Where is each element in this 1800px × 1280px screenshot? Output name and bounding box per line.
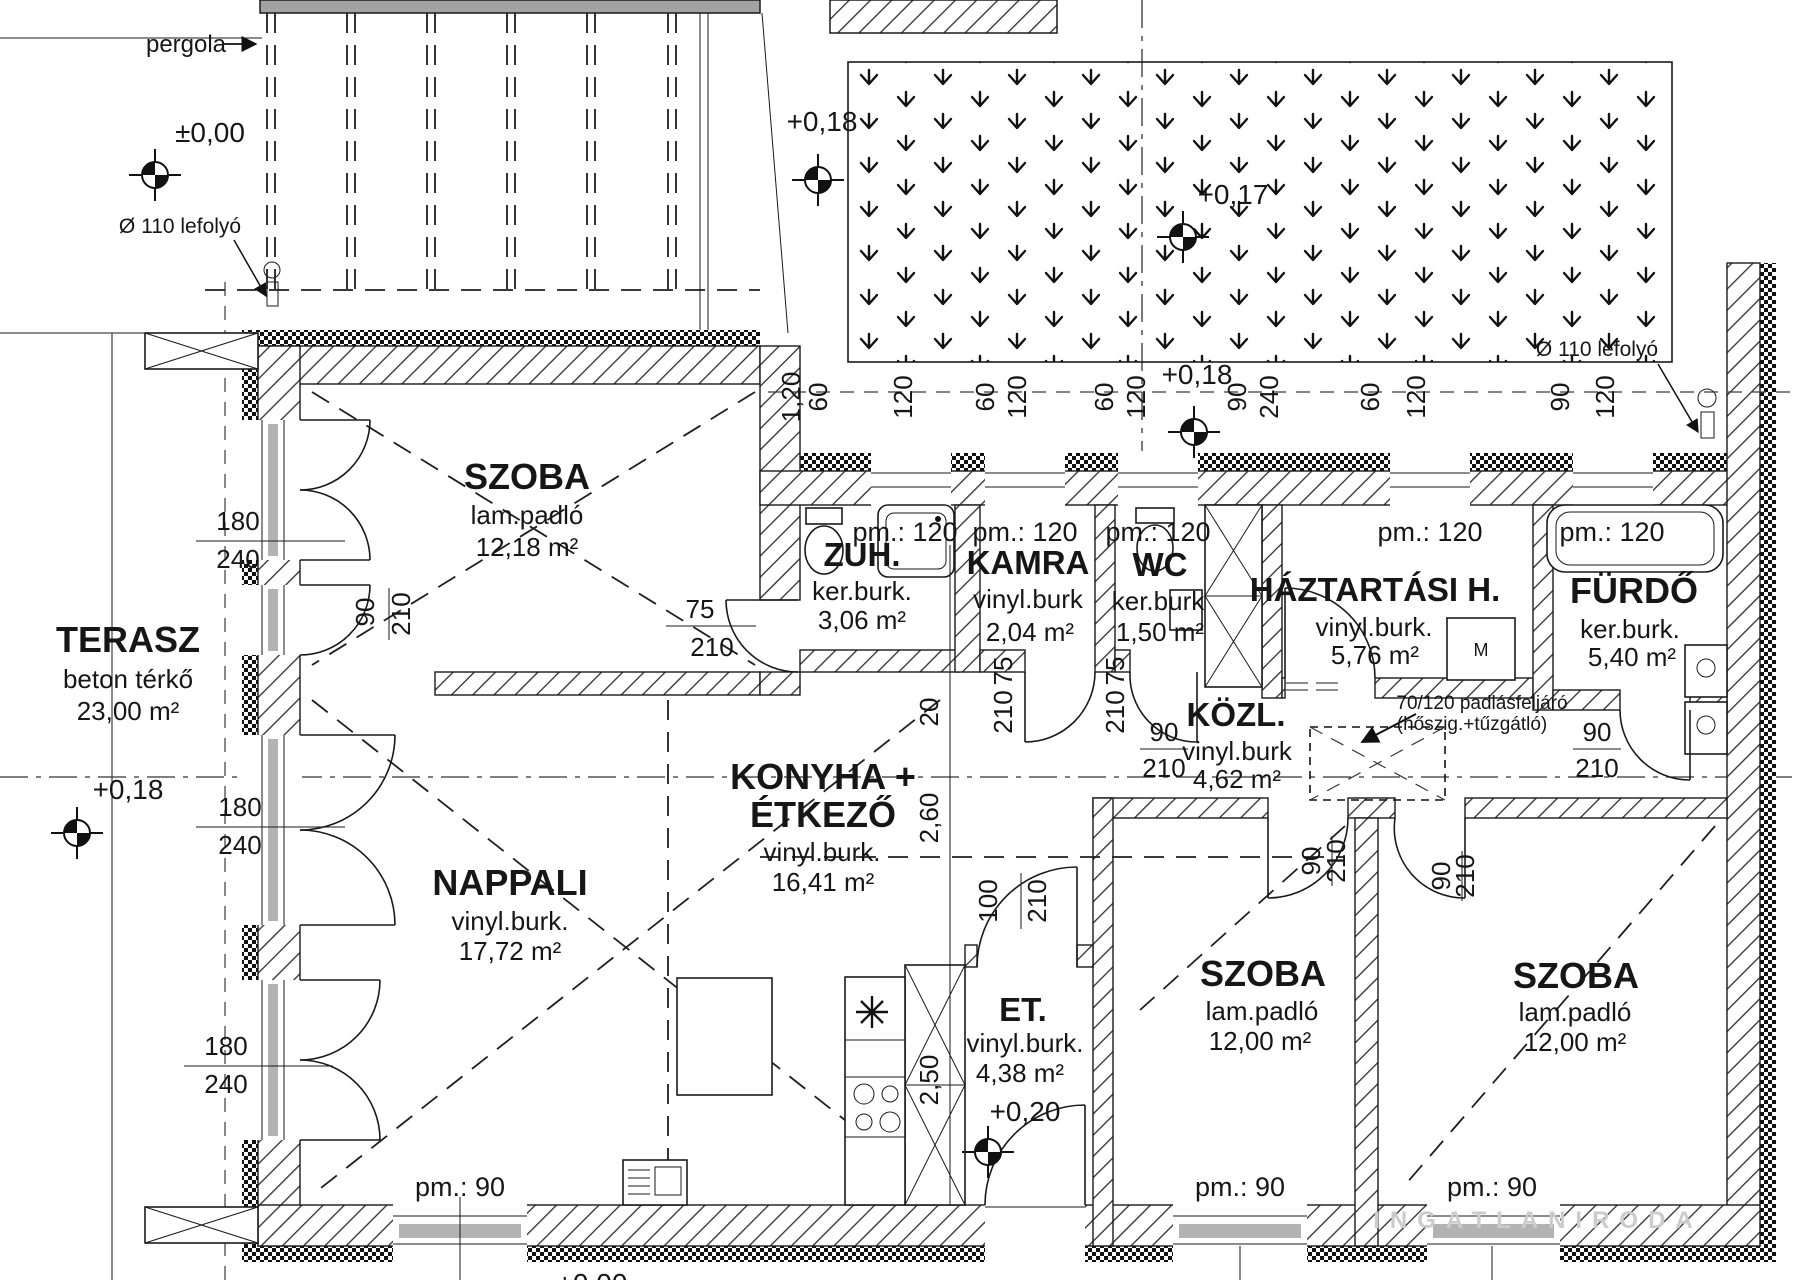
dim-chain-12: 120 bbox=[1590, 375, 1620, 418]
pergola-roof-band bbox=[260, 0, 760, 13]
room-konyha-name2: ÉTKEZŐ bbox=[750, 793, 896, 835]
room-furdo-area: 5,40 m² bbox=[1588, 642, 1676, 672]
dim-chain-8: 240 bbox=[1254, 375, 1284, 418]
dim-door-et-w: 100 bbox=[973, 879, 1003, 922]
room-konyha-area: 16,41 m² bbox=[772, 867, 875, 897]
dim-opening3-h: 240 bbox=[204, 1069, 247, 1099]
dim-chain-2: 120 bbox=[888, 375, 918, 418]
dim-door-kamra-w: 75 bbox=[988, 657, 1018, 686]
basin-2 bbox=[1685, 702, 1727, 754]
dim-k250: 2,50 bbox=[914, 1055, 944, 1106]
dim-opening3-w: 180 bbox=[204, 1031, 247, 1061]
drain-label-left: Ø 110 lefolyó bbox=[119, 215, 241, 238]
dim-chain-9: 60 bbox=[1355, 383, 1385, 412]
washer-mark: M bbox=[1474, 640, 1489, 660]
dim-door-furdo-w: 90 bbox=[1583, 717, 1612, 747]
room-haztartasi-name: HÁZTARTÁSI H. bbox=[1250, 571, 1501, 608]
room-szoba-kozepso-area: 12,00 m² bbox=[1209, 1026, 1312, 1056]
dim-opening2-w: 180 bbox=[218, 792, 261, 822]
dim-chain-1: 60 bbox=[803, 383, 833, 412]
room-terasz-name: TERASZ bbox=[56, 619, 200, 660]
dim-door-et-h: 210 bbox=[1022, 879, 1052, 922]
adjacent-structure-band bbox=[830, 0, 1057, 33]
room-konyha-name1: KONYHA + bbox=[730, 756, 916, 797]
dim-door-zuh-h: 210 bbox=[690, 632, 733, 662]
basin-1 bbox=[1685, 645, 1727, 697]
room-wc-area: 1,50 m² bbox=[1116, 617, 1204, 647]
dim-door-west-w: 90 bbox=[350, 598, 380, 627]
room-szoba-felso-area: 12,18 m² bbox=[476, 532, 579, 562]
sill-furdo: pm.: 120 bbox=[1559, 517, 1664, 547]
level-cut-label: +0,00 bbox=[557, 1268, 628, 1280]
attic-label-2: (hőszig.+tűzgátló) bbox=[1397, 714, 1548, 735]
room-nappali-name: NAPPALI bbox=[432, 862, 587, 903]
room-terasz-finish: beton térkő bbox=[63, 664, 193, 694]
room-wc-finish: ker.burk bbox=[1112, 586, 1205, 616]
wall-east bbox=[1727, 263, 1760, 1246]
room-et-finish: vinyl.burk. bbox=[966, 1028, 1083, 1058]
level-017-label: +0,17 bbox=[1198, 179, 1269, 210]
dim-chain-6: 120 bbox=[1121, 375, 1151, 418]
room-kozl-finish: vinyl.burk bbox=[1182, 736, 1293, 766]
floorplan-drawing: M bbox=[0, 0, 1800, 1280]
level-018-top: +0,18 bbox=[787, 106, 858, 137]
dim-door-szoba2-h: 210 bbox=[1321, 839, 1351, 882]
sill-szoba-jobb: pm.: 90 bbox=[1447, 1172, 1537, 1202]
room-szoba-felso-finish: lam.padló bbox=[471, 500, 584, 530]
room-szoba-felso-name: SZOBA bbox=[464, 456, 590, 497]
roof-terrace-surface bbox=[848, 62, 1672, 362]
room-szoba-jobb-finish: lam.padló bbox=[1519, 997, 1632, 1027]
floorplan-page: M bbox=[0, 0, 1800, 1280]
roof-terrace bbox=[848, 62, 1672, 362]
dim-chain-10: 120 bbox=[1401, 375, 1431, 418]
sill-nappali: pm.: 90 bbox=[415, 1172, 505, 1202]
drain-label-right: Ø 110 lefolyó bbox=[1536, 338, 1658, 361]
sill-wc: pm.: 120 bbox=[1105, 517, 1210, 547]
dim-chain-4: 120 bbox=[1002, 375, 1032, 418]
room-kamra-name: KAMRA bbox=[967, 544, 1090, 581]
room-haztartasi-area: 5,76 m² bbox=[1331, 640, 1419, 670]
dim-opening1-h: 240 bbox=[216, 544, 259, 574]
dim-door-west-h: 210 bbox=[386, 592, 416, 635]
sill-szoba-kozepso: pm.: 90 bbox=[1195, 1172, 1285, 1202]
room-nappali-area: 17,72 m² bbox=[459, 936, 562, 966]
dim-chain-5: 60 bbox=[1089, 383, 1119, 412]
dim-door-kozl-h: 210 bbox=[1142, 753, 1185, 783]
room-terasz-area: 23,00 m² bbox=[77, 696, 180, 726]
room-zuh-finish: ker.burk. bbox=[812, 576, 912, 606]
room-furdo-name: FÜRDŐ bbox=[1570, 569, 1698, 611]
dim-k20: 20 bbox=[914, 698, 944, 727]
room-kamra-area: 2,04 m² bbox=[986, 617, 1074, 647]
dim-door-szoba3-h: 210 bbox=[1450, 854, 1480, 897]
interior-walls bbox=[435, 505, 1727, 1246]
room-szoba-jobb-area: 12,00 m² bbox=[1524, 1027, 1627, 1057]
room-et-area: 4,38 m² bbox=[976, 1058, 1064, 1088]
room-nappali-finish: vinyl.burk. bbox=[451, 906, 568, 936]
dim-opening2-h: 240 bbox=[218, 830, 261, 860]
room-kamra-finish: vinyl.burk bbox=[973, 584, 1084, 614]
kitchen-island bbox=[677, 978, 772, 1095]
dim-chain-0: 1,20 bbox=[776, 372, 806, 423]
room-wc-name: WC bbox=[1133, 546, 1188, 583]
room-furdo-finish: ker.burk. bbox=[1580, 614, 1680, 644]
sill-zuh: pm.: 120 bbox=[852, 517, 957, 547]
room-zuh-area: 3,06 m² bbox=[818, 605, 906, 635]
room-haztartasi-finish: vinyl.burk. bbox=[1315, 612, 1432, 642]
room-konyha-finish: vinyl.burk. bbox=[763, 837, 880, 867]
dim-door-zuh-w: 75 bbox=[686, 594, 715, 624]
sill-kamra: pm.: 120 bbox=[972, 517, 1077, 547]
dim-opening1-w: 180 bbox=[216, 506, 259, 536]
dim-chain-3: 60 bbox=[970, 383, 1000, 412]
room-et-level: +0,20 bbox=[990, 1096, 1061, 1127]
dim-door-wc-h: 210 bbox=[1100, 690, 1130, 733]
dim-door-kozl-w: 90 bbox=[1150, 717, 1179, 747]
pergola-posts bbox=[267, 13, 676, 290]
dim-door-furdo-h: 210 bbox=[1575, 753, 1618, 783]
dim-door-wc-w: 75 bbox=[1100, 657, 1130, 686]
room-kozl-name: KÖZL. bbox=[1187, 696, 1286, 733]
level-018-terasz: +0,18 bbox=[93, 774, 164, 805]
room-szoba-jobb-name: SZOBA bbox=[1513, 955, 1639, 996]
pergola-label: pergola bbox=[146, 31, 227, 58]
dim-chain-7: 90 bbox=[1222, 383, 1252, 412]
room-szoba-kozepso-finish: lam.padló bbox=[1206, 996, 1319, 1026]
sill-haztartasi: pm.: 120 bbox=[1377, 517, 1482, 547]
room-et-name: ET. bbox=[999, 991, 1047, 1028]
dim-chain-11: 90 bbox=[1545, 383, 1575, 412]
attic-label-1: 70/120 padlásfeljáró bbox=[1396, 693, 1567, 714]
wall-top-left-wing bbox=[258, 346, 760, 384]
dim-k260: 2,60 bbox=[914, 793, 944, 844]
room-szoba-kozepso-name: SZOBA bbox=[1200, 953, 1326, 994]
room-kozl-area: 4,62 m² bbox=[1193, 764, 1281, 794]
watermark: INGATLANIRODA bbox=[1373, 1207, 1703, 1234]
toilet-tank bbox=[806, 508, 842, 524]
dim-door-kamra-h: 210 bbox=[988, 690, 1018, 733]
level-zero-label: ±0,00 bbox=[175, 117, 245, 148]
